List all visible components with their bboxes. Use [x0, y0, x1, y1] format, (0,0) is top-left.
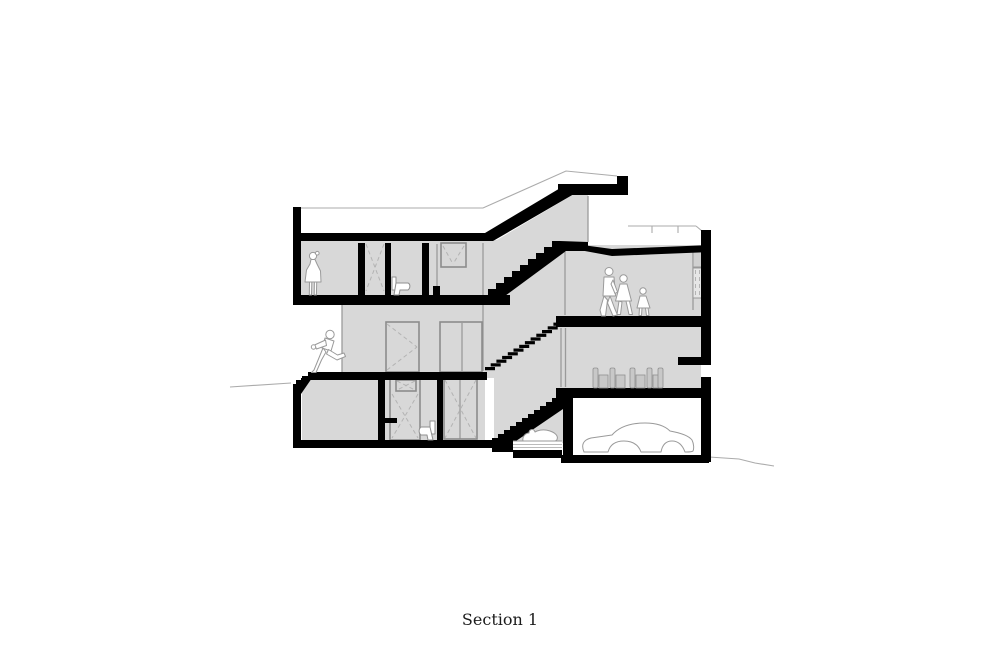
- partition: [378, 378, 385, 440]
- top-floor-room-fill: [301, 235, 485, 301]
- stair-roof-cap: [617, 176, 628, 195]
- ground-line-left: [230, 383, 291, 387]
- pet-bed-mat: [513, 441, 562, 450]
- handrail-stub: [385, 418, 397, 423]
- garage-partition-wall: [563, 398, 573, 458]
- roof-terrace-railing: [628, 226, 702, 233]
- partition: [358, 243, 365, 295]
- stair-flat-roof: [558, 184, 620, 195]
- terrace-slab: [302, 372, 487, 380]
- middle-floor-room-fill: [342, 303, 485, 374]
- section-drawing-canvas: Section 1: [0, 0, 1000, 647]
- car-figure: [583, 423, 694, 452]
- basement-left-wall: [293, 386, 301, 447]
- right-middle-floor-slab: [556, 388, 711, 398]
- ground-line-right: [709, 457, 774, 466]
- window-head-stub: [678, 357, 711, 365]
- top-floor-slab: [293, 295, 510, 305]
- building-section: [0, 0, 1000, 647]
- radiator: [693, 268, 702, 298]
- caption: Section 1: [0, 610, 1000, 629]
- left-exterior-wall: [293, 207, 301, 305]
- low-wall-stub: [433, 286, 440, 296]
- partition: [422, 243, 429, 295]
- right-upper-room-fill: [563, 245, 701, 318]
- partition: [437, 378, 443, 440]
- right-exterior-wall-upper: [701, 230, 711, 365]
- garage-floor-slab: [561, 455, 709, 463]
- basement-room-fill: [302, 379, 485, 442]
- right-upper-floor-slab: [556, 316, 711, 327]
- basement-floor-slab: [293, 440, 520, 448]
- wall-niche: [693, 251, 702, 267]
- pet-bed-base: [513, 450, 562, 458]
- partition: [385, 243, 391, 295]
- running-boy-figure: [311, 330, 345, 372]
